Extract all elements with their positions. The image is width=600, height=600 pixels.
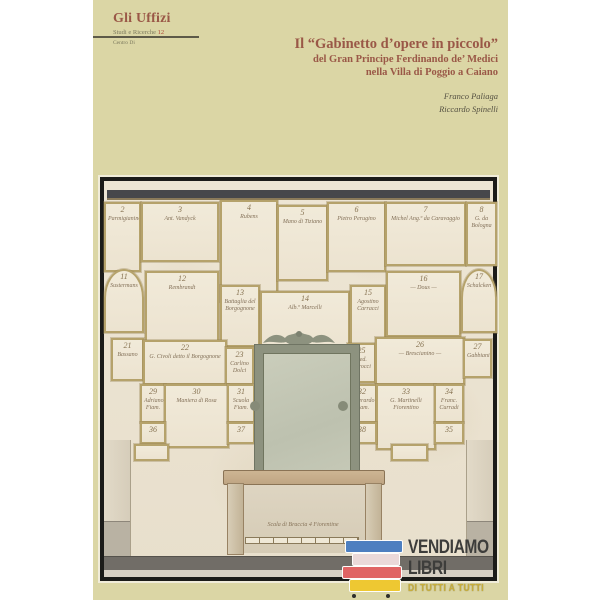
mirror-ornament [338, 401, 348, 411]
wall-frame-35: 35 [434, 422, 464, 444]
logo-tagline: DI TUTTI A TUTTI [408, 583, 484, 594]
wall-frame-37: 37 [227, 422, 255, 444]
series-block: Gli Uffizi Studi e Ricerche 12 Centro Di [113, 11, 171, 46]
frame-number: 34 [436, 386, 462, 397]
frame-artist-label: Maniera di Rosa [166, 397, 227, 406]
wall-frame-29: 29Adriano Fiam. [140, 384, 166, 423]
wall-frame-8: 8G. da Bologna [466, 202, 497, 266]
frame-artist-label: Pietro Perugino [329, 215, 384, 224]
book-cover: Gli Uffizi Studi e Ricerche 12 Centro Di… [93, 0, 508, 600]
wall-frame-5: 5Mano di Tiziano [277, 205, 328, 281]
frame-artist-label: — Dous — [388, 284, 459, 293]
frame-artist-label: Mano di Tiziano [279, 218, 326, 227]
frame-number: 16 [388, 273, 459, 284]
scale-caption: Scala di Braccia 4 Fiorentine [224, 522, 382, 528]
frame-number: 14 [262, 293, 348, 304]
logo-dot [386, 594, 390, 598]
frame-artist-label: Rubens [222, 213, 276, 222]
frame-number: 30 [166, 386, 227, 397]
frame-number: 29 [142, 386, 164, 397]
frame-artist-label: Franc. Curradi [436, 397, 462, 413]
wall-frame [391, 444, 428, 461]
wall-frame-34: 34Franc. Curradi [434, 384, 464, 423]
cornice-band [107, 190, 490, 200]
frame-number: 12 [147, 273, 217, 284]
series-rule [93, 36, 199, 38]
series-number: 12 [158, 29, 165, 36]
wall-frame-17: 17Schalcken [461, 269, 497, 333]
vendiamolibri-logo: VENDIAMO LIBRI DI TUTTI A TUTTI [340, 538, 510, 600]
frame-artist-label: G. Martinelli Fiorentino [378, 397, 434, 413]
frame-artist-label: Adriano Fiam. [142, 397, 164, 413]
title-line-2: del Gran Principe Ferdinando de’ Medici [294, 53, 498, 66]
title-line-1: Il “Gabinetto d’opere in piccolo” [294, 36, 498, 53]
frame-number: 4 [222, 202, 276, 213]
wall-frame-30: 30Maniera di Rosa [164, 384, 229, 448]
wall-frame-6: 6Pietro Perugino [327, 202, 386, 272]
frame-number: 31 [229, 386, 253, 397]
authors-block: Franco Paliaga Riccardo Spinelli [439, 90, 498, 116]
wall-frame-23: 23Carlino Dolci [225, 347, 254, 385]
wall-frame-3: 3Ant. Vandyck [141, 202, 219, 262]
series-subtitle: Studi e Ricerche 12 [113, 29, 171, 36]
book-icon-blue [345, 540, 403, 553]
publisher-imprint: Centro Di [113, 40, 171, 46]
frame-number: 7 [387, 204, 464, 215]
wall-frame-11: 11Sustermans [104, 269, 144, 333]
wall-frame-2: 2Parmigianino [104, 202, 141, 272]
frame-artist-label: — Brescianino — [377, 350, 463, 359]
console-table-top [223, 470, 385, 485]
frame-number: 13 [222, 287, 258, 298]
frame-number: 35 [436, 424, 462, 435]
mirror-ornament [250, 401, 260, 411]
frame-artist-label: Ant. Vandyck [143, 215, 217, 224]
frame-artist-label: Gabbiani [465, 352, 490, 361]
logo-dot [352, 594, 356, 598]
frame-artist-label: Carlino Dolci [227, 360, 252, 376]
frame-artist-label: Michel Ang.º da Caravaggio [387, 215, 464, 224]
frame-number: 23 [227, 349, 252, 360]
left-pilaster [104, 440, 131, 556]
frame-number: 8 [468, 204, 495, 215]
frame-number: 2 [106, 204, 139, 215]
wall-frame-26: 26— Brescianino — [375, 337, 465, 385]
frame-number: 6 [329, 204, 384, 215]
wall-frame-16: 16— Dous — [386, 271, 461, 337]
wall-frame-7: 7Michel Ang.º da Caravaggio [385, 202, 466, 266]
book-icon-red [342, 566, 402, 579]
wall-frame-33: 33G. Martinelli Fiorentino [376, 384, 436, 450]
frame-artist-label: Parmigianino [106, 215, 139, 224]
wall-frame-27: 27Gabbiani [463, 339, 492, 378]
frame-number: 21 [113, 340, 142, 351]
frame-number: 3 [143, 204, 217, 215]
wall-frame [134, 444, 169, 461]
frame-artist-label: Bassano [113, 351, 142, 360]
author-1: Franco Paliaga [439, 90, 498, 103]
book-title: Il “Gabinetto d’opere in piccolo” del Gr… [294, 36, 498, 79]
pilaster-base [104, 521, 130, 556]
wall-frame-36: 36 [140, 422, 166, 444]
frame-artist-label: Agostino Carracci [352, 298, 384, 314]
book-icon-yellow [349, 579, 401, 592]
frame-number: 33 [378, 386, 434, 397]
wall-frame-22: 22G. Civoli detto il Borgognone [143, 340, 227, 385]
title-line-3: nella Villa di Poggio a Caiano [294, 66, 498, 79]
book-icon-pale [352, 553, 400, 566]
frame-number: 37 [229, 424, 253, 435]
frame-number: 36 [142, 424, 164, 435]
cover-plate-illustration: 2Parmigianino3Ant. Vandyck4Rubens5Mano d… [100, 177, 497, 581]
wall-frame-12: 12Rembrandt [145, 271, 219, 343]
series-title: Gli Uffizi [113, 11, 171, 27]
frame-number: 27 [465, 341, 490, 352]
frame-artist-label: G. da Bologna [468, 215, 495, 231]
frame-number: 15 [352, 287, 384, 298]
frame-artist-label: Alb.º Marcelli [262, 304, 348, 313]
frame-artist-label: Schalcken [463, 282, 495, 291]
logo-wordmark: VENDIAMO LIBRI [408, 538, 489, 579]
frame-artist-label: Sustermans [106, 282, 142, 291]
wall-mirror [255, 345, 359, 486]
frame-number: 5 [279, 207, 326, 218]
frame-artist-label: Battaglia del Borgognone [222, 298, 258, 314]
frame-artist-label: G. Civoli detto il Borgognone [145, 353, 225, 362]
wall-frame-21: 21Bassano [111, 338, 144, 381]
frame-artist-label: Rembrandt [147, 284, 217, 293]
frame-number: 22 [145, 342, 225, 353]
author-2: Riccardo Spinelli [439, 103, 498, 116]
console-table-leg [227, 483, 244, 555]
frame-number: 26 [377, 339, 463, 350]
